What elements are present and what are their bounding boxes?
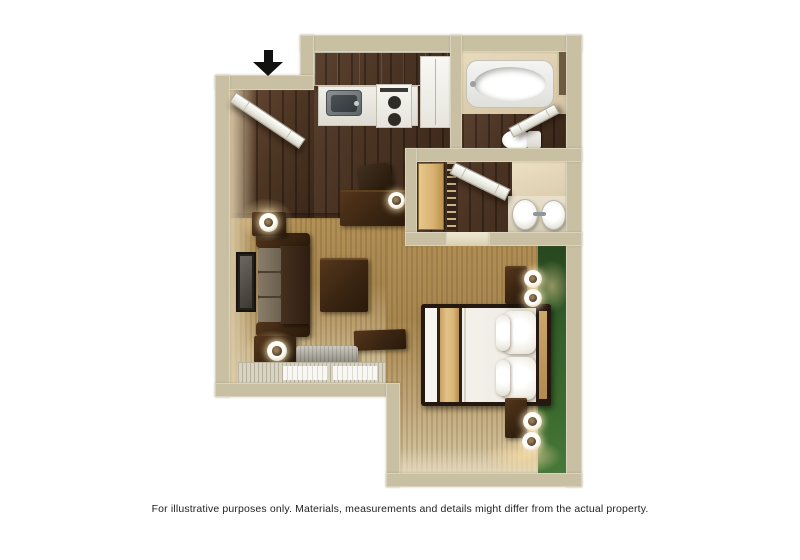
- bedside-lamp-3: [523, 412, 542, 431]
- heater-unit: [296, 346, 358, 363]
- tv: [236, 252, 256, 312]
- vanity-faucet: [533, 212, 546, 216]
- kitchen-sink: [326, 90, 362, 116]
- wall-left: [215, 75, 230, 397]
- stove: [376, 84, 412, 128]
- bathtub-basin: [474, 67, 546, 101]
- sofa-back: [280, 246, 310, 324]
- bedside-lamp-4: [522, 432, 541, 451]
- kitchen-faucet: [354, 101, 359, 106]
- sofa-armrest-bottom: [256, 322, 310, 337]
- stove-burner-rear: [388, 113, 401, 126]
- bedside-lamp-2: [524, 289, 542, 307]
- bathtub: [466, 60, 554, 108]
- wall-bottom: [386, 473, 582, 487]
- stove-burner-front: [388, 96, 401, 109]
- window-pane-right: [333, 366, 377, 380]
- bedside-lamp-1: [524, 270, 542, 288]
- entry-arrow-stem: [264, 50, 273, 62]
- wall-dressing-bottom-right: [489, 232, 582, 246]
- wall-right: [566, 35, 582, 487]
- toilet-tank: [527, 131, 541, 149]
- caption-text: For illustrative purposes only. Material…: [0, 503, 800, 515]
- refrigerator-door-seam: [435, 59, 436, 125]
- ottoman: [354, 329, 407, 351]
- tv-screen: [240, 256, 252, 308]
- bed-pillow-lower-front: [496, 360, 510, 396]
- bed-runner-stripe: [437, 308, 462, 402]
- desk-lamp: [388, 192, 405, 209]
- bathtub-faucet: [470, 81, 476, 87]
- refrigerator: [420, 56, 452, 128]
- headboard: [536, 305, 551, 405]
- wall-bottom-left: [215, 383, 400, 397]
- sofa-cushion: [258, 298, 281, 322]
- entry-arrow-head: [253, 62, 283, 76]
- bed-pillow-upper-front: [496, 315, 510, 351]
- wall-bathroom-left: [450, 35, 462, 162]
- headboard-panel: [539, 311, 547, 399]
- window-pane-left: [283, 366, 327, 380]
- table-lamp-bottom: [267, 341, 287, 361]
- coffee-table: [320, 258, 368, 312]
- wall-dressing-bottom-left: [405, 232, 447, 246]
- wall-top: [300, 35, 582, 52]
- sofa-cushion: [258, 248, 281, 271]
- wardrobe: [418, 163, 444, 230]
- entry-arrow-icon: [253, 50, 283, 76]
- table-lamp-top: [259, 213, 278, 232]
- sofa-cushion: [258, 273, 281, 296]
- wall-bedroom-left: [386, 383, 400, 487]
- duvet-fold-line: [464, 308, 466, 402]
- floorplan-canvas: For illustrative purposes only. Material…: [0, 0, 800, 560]
- stove-control-panel: [380, 88, 408, 92]
- window-blinds: [238, 362, 386, 384]
- dressing-doorway-threshold: [447, 232, 489, 246]
- sofa-seat-cushions: [258, 248, 281, 322]
- wall-bathroom-bottom: [405, 148, 582, 162]
